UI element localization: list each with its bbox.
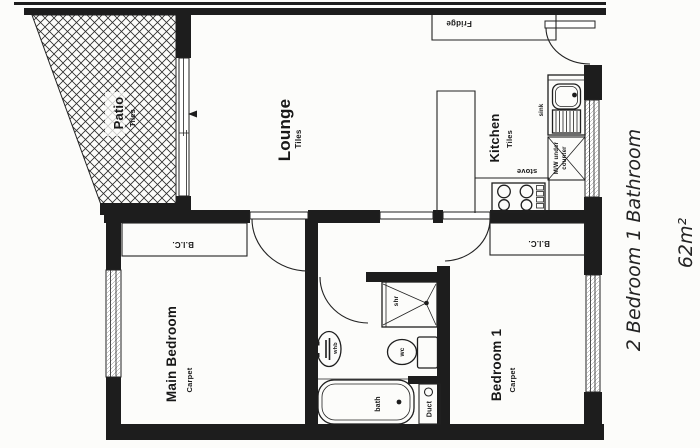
bath-drain-icon	[397, 400, 402, 405]
sink-label: sink	[539, 103, 545, 116]
bic-bedroom1-label: B.I.C.	[528, 239, 550, 248]
floor-plan-page: Patio Tiles Lounge Tiles Kitchen Tiles M…	[0, 0, 700, 448]
microwave-label-line1: M/W under	[554, 141, 560, 174]
basin-label: whb	[333, 342, 339, 355]
window-kitchen	[585, 100, 599, 197]
bath-label: bath	[375, 396, 382, 412]
shower-drain-icon	[424, 301, 429, 306]
tap-icon	[572, 93, 577, 98]
basin-tap-icon	[315, 353, 320, 357]
annotation-area: 62m²	[675, 217, 697, 268]
main-bedroom-door-leaf	[250, 212, 308, 219]
hall-opening	[380, 212, 433, 219]
bedroom1-label: Bedroom 1	[489, 329, 504, 402]
shower-label: shr	[393, 295, 400, 306]
annotation-title: 2 Bedroom 1 Bathroom	[623, 129, 645, 351]
patio-floor-label: Tiles	[128, 109, 137, 127]
floor-plan-svg: Patio Tiles Lounge Tiles Kitchen Tiles M…	[0, 0, 700, 448]
main-bedroom-floor-label: Carpet	[185, 367, 194, 392]
patio-label: Patio	[111, 97, 126, 130]
kitchen-label: Kitchen	[487, 113, 502, 162]
window-bedroom1	[586, 275, 600, 392]
stove-label: stove	[517, 167, 538, 176]
window-main-bedroom	[106, 270, 121, 377]
duct-label: Duct	[427, 400, 434, 417]
toilet-label: wc	[399, 347, 406, 357]
main-bedroom-label: Main Bedroom	[164, 306, 179, 402]
basin-tap-icon	[315, 342, 320, 346]
bedroom1-door-leaf	[443, 212, 490, 219]
bic-main-bedroom-label: B.I.C.	[172, 240, 194, 249]
entrance-door-leaf	[545, 21, 595, 28]
lounge-floor-label: Tiles	[294, 129, 303, 148]
lounge-label: Lounge	[275, 99, 294, 162]
kitchen-floor-label: Tiles	[505, 130, 514, 148]
bedroom1-floor-label: Carpet	[508, 367, 517, 392]
microwave-label-line2: counter	[562, 146, 568, 170]
fridge-label: Fridge	[446, 19, 472, 28]
